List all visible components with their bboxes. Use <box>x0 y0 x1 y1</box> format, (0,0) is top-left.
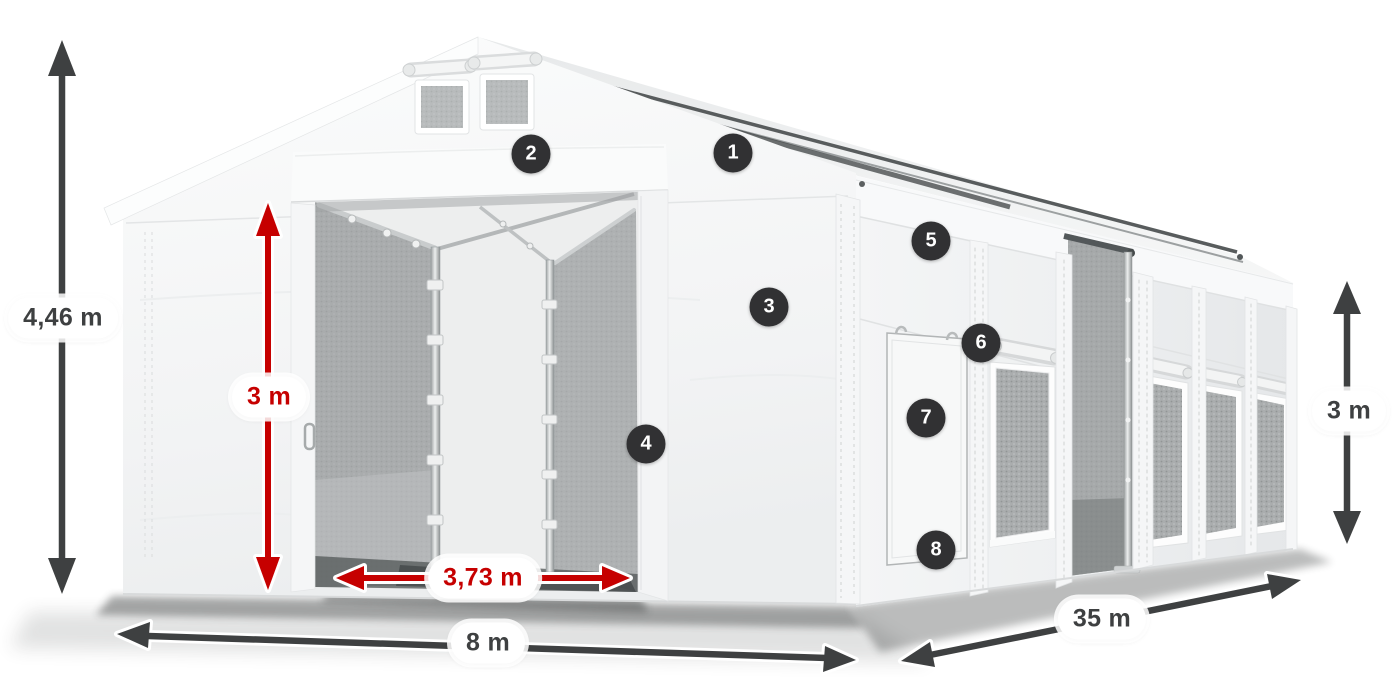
tent-illustration <box>0 0 1400 700</box>
callout-8-door-bottom[interactable]: 8 <box>917 531 956 570</box>
dimension-entrance-width: 3,73 m <box>428 558 538 599</box>
callout-3-front-wall[interactable]: 3 <box>750 288 789 327</box>
entrance-opening <box>315 191 638 592</box>
corner-strap <box>836 194 860 604</box>
callout-2-gable[interactable]: 2 <box>512 135 551 174</box>
side-window <box>990 341 1062 548</box>
callout-1-roof[interactable]: 1 <box>714 134 753 173</box>
callout-6-side-window[interactable]: 6 <box>962 324 1001 363</box>
tent-diagram: 4,46 m 3 m 3,73 m 8 m 35 m 3 m 1 2 3 4 5… <box>0 0 1400 700</box>
callout-5-side-panel[interactable]: 5 <box>912 222 951 261</box>
dimension-width: 8 m <box>451 623 525 664</box>
dimension-side-height: 3 m <box>1312 391 1386 432</box>
callout-7-side-door[interactable]: 7 <box>907 399 946 438</box>
side-door <box>887 327 967 565</box>
open-wall-section <box>1064 234 1140 576</box>
dimension-total-height: 4,46 m <box>8 298 118 339</box>
dimension-entrance-height: 3 m <box>232 377 306 418</box>
callout-4-entrance[interactable]: 4 <box>627 425 666 464</box>
dimension-length: 35 m <box>1058 599 1146 640</box>
